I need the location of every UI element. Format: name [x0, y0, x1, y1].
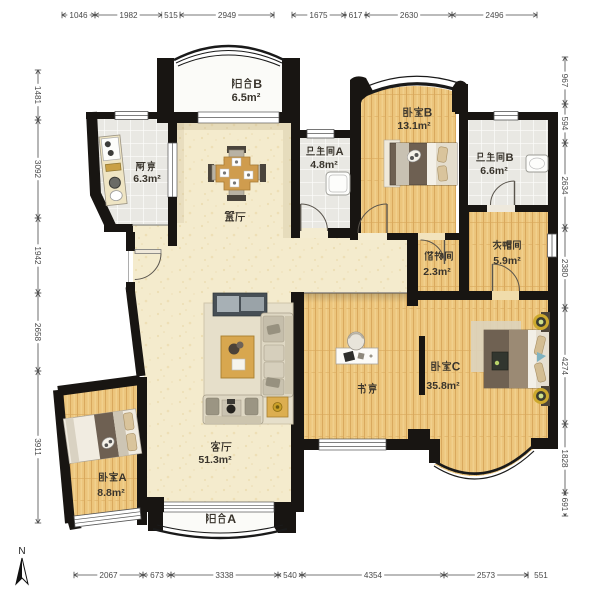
svg-text:2573: 2573: [477, 571, 496, 580]
svg-text:1046: 1046: [69, 11, 88, 20]
svg-text:540: 540: [283, 571, 297, 580]
svg-text:6.6m²: 6.6m²: [480, 165, 508, 177]
svg-text:1675: 1675: [309, 11, 328, 20]
svg-text:1828: 1828: [560, 449, 569, 468]
svg-text:3911: 3911: [33, 438, 42, 456]
svg-text:2949: 2949: [218, 11, 237, 20]
svg-text:A: A: [119, 472, 127, 484]
svg-text:B: B: [506, 152, 514, 164]
svg-text:8.8m²: 8.8m²: [97, 487, 125, 499]
svg-text:594: 594: [560, 117, 569, 131]
svg-text:4354: 4354: [364, 571, 383, 580]
svg-text:2634: 2634: [560, 176, 569, 195]
svg-text:13.1m²: 13.1m²: [397, 120, 431, 132]
svg-text:617: 617: [349, 11, 363, 20]
svg-text:A: A: [336, 146, 344, 158]
svg-text:967: 967: [560, 74, 569, 88]
svg-text:2496: 2496: [485, 11, 504, 20]
svg-text:B: B: [424, 106, 433, 120]
svg-text:4274: 4274: [560, 357, 569, 376]
svg-text:1982: 1982: [119, 11, 138, 20]
svg-text:1942: 1942: [33, 246, 42, 265]
svg-text:551: 551: [534, 571, 548, 580]
svg-text:5.9m²: 5.9m²: [493, 255, 521, 267]
svg-text:2630: 2630: [400, 11, 419, 20]
svg-text:C: C: [452, 360, 461, 374]
svg-text:3092: 3092: [33, 160, 42, 179]
svg-text:6.5m²: 6.5m²: [232, 92, 261, 104]
svg-text:1481: 1481: [33, 86, 42, 105]
svg-text:A: A: [227, 512, 236, 526]
svg-text:6.3m²: 6.3m²: [133, 173, 161, 185]
svg-text:4.8m²: 4.8m²: [310, 159, 338, 171]
svg-text:51.3m²: 51.3m²: [198, 454, 232, 466]
svg-text:35.8m²: 35.8m²: [426, 380, 460, 392]
svg-text:3338: 3338: [215, 571, 234, 580]
svg-text:N: N: [18, 546, 25, 557]
svg-text:2658: 2658: [33, 323, 42, 342]
svg-text:2067: 2067: [99, 571, 118, 580]
svg-text:673: 673: [150, 571, 164, 580]
svg-text:515: 515: [164, 11, 178, 20]
svg-text:691: 691: [560, 498, 569, 512]
svg-text:2380: 2380: [560, 259, 569, 278]
svg-text:B: B: [253, 77, 262, 91]
svg-text:2.3m²: 2.3m²: [423, 266, 451, 278]
